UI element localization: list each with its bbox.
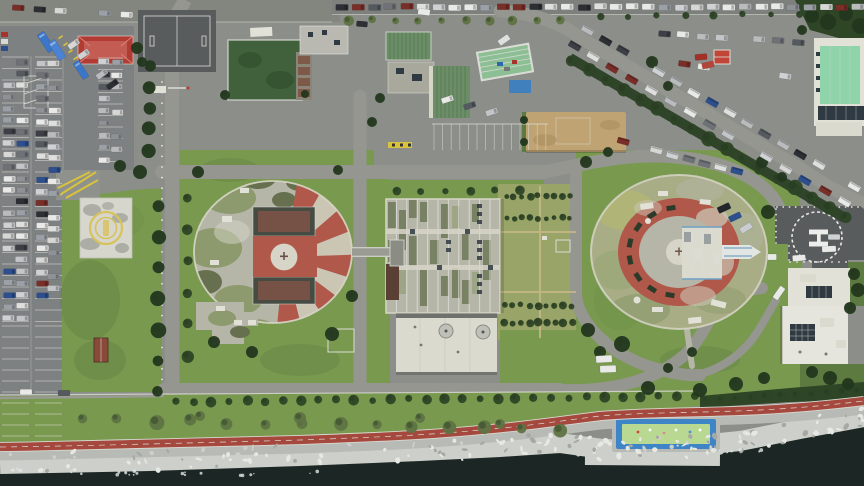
tree [485, 16, 494, 25]
tree [738, 154, 748, 164]
tree [761, 205, 775, 219]
tree [693, 383, 707, 397]
tree [544, 216, 549, 221]
bollard [161, 368, 163, 370]
red-kiosk [714, 50, 730, 64]
tree [393, 187, 402, 196]
tree [569, 304, 575, 310]
bollard [161, 219, 163, 221]
car [3, 106, 15, 112]
car [480, 5, 493, 11]
car [16, 163, 28, 169]
tree [220, 418, 232, 430]
tree [153, 261, 165, 273]
tree [796, 11, 803, 18]
car [36, 141, 48, 147]
van [600, 365, 616, 373]
tree [581, 323, 595, 337]
car [37, 223, 49, 229]
tree [504, 194, 509, 199]
aerial-photo-stage: H [0, 0, 864, 486]
container-gray [504, 67, 510, 71]
tree [641, 381, 655, 395]
tree [618, 393, 627, 402]
bollard [801, 206, 803, 208]
car [16, 82, 28, 88]
tree [533, 17, 541, 25]
tree [260, 420, 270, 430]
car [835, 5, 848, 11]
bollard [161, 155, 163, 157]
tree [687, 124, 698, 135]
car [675, 5, 688, 11]
tree [225, 398, 232, 405]
tree [438, 17, 445, 24]
car [48, 179, 60, 185]
tree [527, 214, 534, 221]
car [695, 53, 707, 60]
bollard [161, 187, 163, 189]
tree [183, 289, 192, 298]
tree [848, 268, 860, 280]
car [4, 269, 16, 275]
car [3, 94, 15, 100]
car [3, 164, 15, 170]
tree [709, 11, 717, 19]
bollard [161, 124, 163, 126]
car [49, 167, 61, 173]
car [121, 12, 133, 18]
bollard [161, 347, 163, 349]
tree [78, 414, 87, 423]
car [16, 222, 28, 228]
tree [348, 395, 359, 406]
car [36, 200, 48, 206]
car [642, 4, 655, 10]
bollard [838, 261, 840, 263]
car [36, 119, 48, 125]
gray-flat-building [300, 26, 348, 54]
car [17, 176, 29, 182]
tree [172, 398, 179, 405]
tree [535, 216, 541, 222]
van [596, 355, 612, 363]
tree [279, 396, 288, 405]
car [99, 133, 110, 138]
tree [151, 323, 167, 339]
tree [518, 302, 524, 308]
tree [650, 101, 664, 115]
bollard [795, 206, 797, 208]
car [48, 121, 60, 127]
tree [206, 397, 217, 408]
tree [333, 165, 343, 175]
bollard [838, 206, 840, 208]
bollard [807, 206, 809, 208]
car [787, 4, 800, 10]
car [37, 177, 49, 183]
car [48, 226, 60, 232]
tree [823, 201, 836, 214]
bollard [161, 134, 163, 136]
bollard [775, 231, 777, 233]
car [384, 4, 397, 10]
dirt-lot [522, 112, 626, 153]
tree [527, 303, 533, 309]
car [15, 257, 27, 263]
tree [458, 394, 467, 403]
car [677, 31, 689, 38]
tree [495, 419, 505, 429]
tree [758, 372, 770, 384]
car [99, 96, 110, 101]
bollard [161, 102, 163, 104]
car [16, 303, 28, 309]
tree [806, 366, 818, 378]
bollard [782, 206, 784, 208]
tree [182, 224, 193, 235]
car [17, 210, 29, 216]
tree [534, 192, 540, 198]
bollard [161, 166, 163, 168]
helipad-h-marking: H [802, 227, 832, 249]
car [3, 140, 15, 146]
tree [414, 17, 421, 24]
car [16, 281, 28, 287]
car [37, 73, 49, 79]
car [578, 5, 591, 11]
car [37, 281, 49, 287]
tree [534, 318, 543, 327]
car [34, 6, 46, 12]
tree [152, 386, 163, 397]
tree [150, 291, 165, 306]
tree [599, 392, 610, 403]
car [99, 158, 110, 163]
car [768, 254, 777, 260]
tree [192, 166, 204, 178]
car [16, 60, 28, 66]
bollard [775, 214, 777, 216]
bollard [161, 378, 163, 380]
car [17, 316, 29, 322]
tree [559, 319, 568, 328]
car [20, 389, 32, 395]
tree [519, 194, 524, 199]
tree [183, 319, 193, 329]
car [36, 235, 48, 241]
car [659, 5, 672, 11]
car [610, 4, 623, 10]
car [47, 61, 59, 67]
tree [183, 194, 192, 203]
tree [551, 303, 557, 309]
car [352, 4, 365, 10]
car [2, 315, 14, 321]
tree [526, 319, 534, 327]
tree [739, 11, 745, 17]
car [99, 145, 110, 150]
tree [687, 347, 697, 357]
car [54, 8, 66, 14]
bollard [161, 283, 163, 285]
tree [220, 90, 230, 100]
tree [332, 395, 340, 403]
tree [491, 187, 498, 194]
tree [111, 414, 121, 424]
car [16, 269, 28, 275]
tree [417, 188, 424, 195]
car [111, 147, 122, 152]
tree [184, 414, 196, 426]
tree [787, 180, 802, 195]
tree [144, 102, 156, 114]
tree [466, 187, 475, 196]
bollard [824, 261, 826, 263]
car [47, 274, 59, 280]
tree [142, 121, 156, 135]
tree [442, 188, 448, 194]
tree [617, 83, 630, 96]
roadside-bins [1, 32, 8, 51]
car [804, 4, 817, 10]
car [3, 152, 15, 158]
car [36, 84, 48, 90]
car [17, 71, 29, 77]
pad-emblem [90, 212, 122, 244]
tree [823, 371, 837, 385]
tree [493, 394, 504, 405]
tree [131, 42, 143, 54]
bollard [857, 206, 859, 208]
tree [672, 391, 682, 401]
tree [635, 94, 648, 107]
tree [535, 302, 543, 310]
car [17, 118, 29, 124]
car [58, 390, 70, 396]
tree [133, 165, 147, 179]
tree [720, 142, 734, 156]
car [111, 134, 122, 139]
container-red [512, 60, 517, 64]
car [594, 3, 607, 9]
car [691, 4, 704, 10]
car [49, 108, 61, 114]
green-ribbed-roof-2 [429, 66, 470, 118]
garden-shed [94, 338, 108, 362]
tree [505, 216, 510, 221]
car [658, 31, 670, 38]
car [37, 153, 49, 159]
bollard [789, 261, 791, 263]
tree [443, 421, 457, 435]
tree [508, 16, 518, 26]
tree [580, 156, 592, 168]
tree [823, 388, 832, 397]
tree [301, 90, 309, 98]
car [3, 117, 15, 123]
tree [597, 13, 604, 20]
tree [805, 192, 818, 205]
tree [717, 396, 724, 403]
bollard [788, 259, 790, 261]
car [12, 5, 24, 11]
car [530, 4, 543, 10]
tree [114, 160, 126, 172]
car [37, 96, 49, 102]
tree [547, 394, 555, 402]
tree [246, 346, 258, 358]
bollard [161, 145, 163, 147]
car [464, 4, 477, 10]
car [369, 5, 382, 11]
car [47, 132, 59, 138]
car [15, 245, 27, 251]
tree [462, 16, 471, 25]
tree [569, 319, 576, 326]
bollard [851, 206, 853, 208]
bollard [775, 242, 777, 244]
car [99, 120, 110, 125]
tree [567, 216, 572, 221]
tree [153, 200, 165, 212]
tree [551, 193, 558, 200]
tree [477, 395, 484, 402]
tree [385, 394, 395, 404]
bollard [161, 315, 163, 317]
tree [559, 214, 566, 221]
tree [190, 398, 198, 406]
bollard [775, 219, 777, 221]
car [16, 198, 28, 204]
car [49, 155, 61, 161]
car [36, 257, 48, 263]
tree [583, 63, 596, 76]
bollard [161, 81, 163, 83]
tree [805, 9, 819, 23]
car [17, 152, 29, 158]
tree [603, 147, 613, 157]
car [739, 4, 752, 10]
tree [296, 395, 306, 405]
car [36, 131, 48, 137]
tree [792, 391, 800, 399]
bollard [161, 251, 163, 253]
tree [500, 319, 508, 327]
tree [294, 412, 306, 424]
tree [842, 378, 854, 390]
car [513, 4, 526, 10]
tree [559, 301, 567, 309]
bollard [813, 206, 815, 208]
tree [243, 395, 253, 405]
old-landing-pad [80, 198, 132, 258]
car [852, 4, 864, 10]
tree [527, 193, 535, 201]
right-circular-building [591, 175, 767, 329]
bollard [776, 206, 778, 208]
bollard [803, 261, 805, 263]
tree [369, 397, 376, 404]
car [545, 4, 558, 10]
tree [820, 14, 836, 30]
car [48, 144, 60, 150]
tree [261, 398, 269, 406]
bridge-tower [390, 240, 404, 266]
tree [367, 117, 377, 127]
tree [405, 395, 412, 402]
tree [502, 302, 508, 308]
car [4, 304, 16, 310]
car [37, 245, 49, 251]
bollard [775, 225, 777, 227]
car [772, 37, 784, 44]
car [4, 280, 16, 286]
bollard [775, 236, 777, 238]
tree [703, 397, 710, 404]
tree [566, 55, 577, 66]
car [47, 286, 59, 292]
car [17, 141, 29, 147]
car [98, 108, 109, 113]
tree [748, 394, 755, 401]
tree [372, 420, 381, 429]
blue-canopy [509, 80, 531, 93]
car [36, 107, 48, 113]
tree [208, 336, 220, 348]
tree [375, 93, 385, 103]
car [3, 222, 15, 228]
car [37, 61, 49, 67]
bollard [161, 177, 163, 179]
tree [344, 16, 354, 26]
tree [141, 144, 155, 158]
car [822, 246, 836, 252]
car [3, 210, 15, 216]
car [48, 215, 60, 221]
car [753, 36, 765, 43]
tree [777, 172, 787, 182]
car [48, 85, 60, 91]
car [3, 83, 15, 89]
car [36, 270, 48, 276]
tree [625, 14, 631, 20]
tree [515, 185, 525, 195]
tree [405, 421, 417, 433]
tree [601, 75, 612, 86]
tree [670, 114, 681, 125]
car [3, 246, 15, 252]
seaside-white-building [780, 268, 850, 364]
tree [182, 351, 194, 363]
car [792, 39, 804, 46]
tree [840, 212, 851, 223]
car [792, 255, 805, 262]
tree [646, 56, 658, 68]
bollard [161, 272, 163, 274]
tree [653, 12, 659, 18]
tree [137, 57, 147, 67]
car [4, 293, 16, 299]
tree [529, 394, 537, 402]
tree [152, 230, 166, 244]
tree [583, 392, 591, 400]
car [697, 33, 709, 40]
tree [512, 216, 517, 221]
annex-building [396, 313, 497, 375]
tree [844, 302, 856, 314]
tree [510, 321, 516, 327]
